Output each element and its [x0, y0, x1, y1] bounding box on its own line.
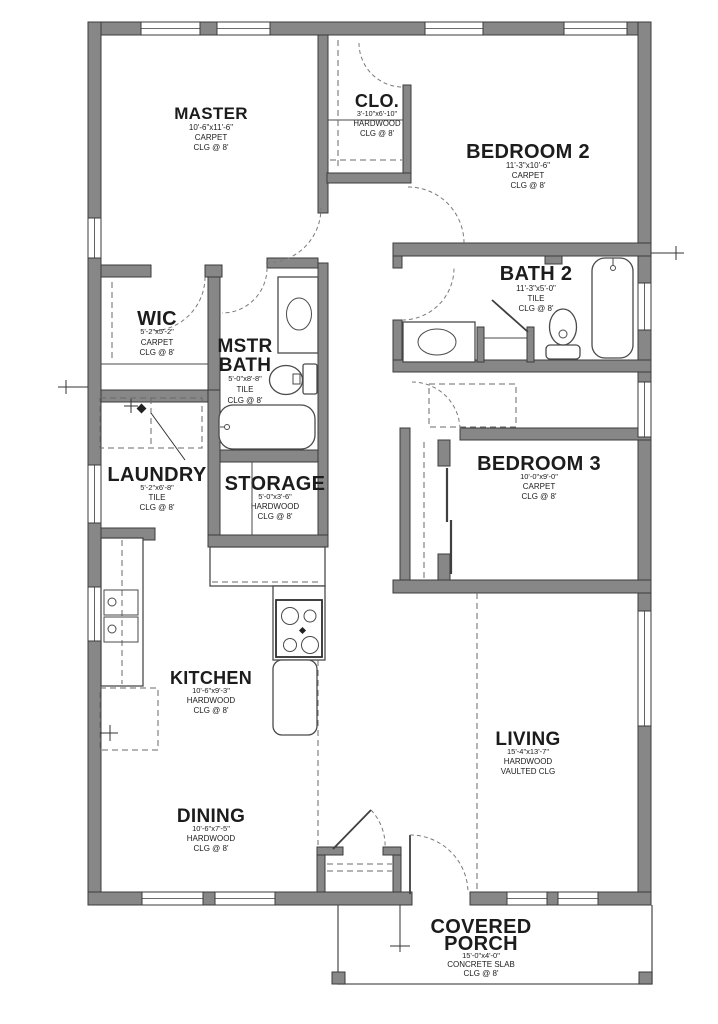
wall-segment: [400, 428, 410, 593]
mstr-bath-vanity: [278, 277, 318, 353]
storage-floor: HARDWOOD: [251, 502, 300, 511]
porch-floor: CONCRETE SLAB: [447, 960, 515, 969]
door-arc-front: [410, 835, 468, 893]
wall-segment: [318, 35, 328, 213]
wic-ceiling: CLG @ 8': [140, 348, 175, 357]
window: [217, 22, 270, 35]
window: [88, 465, 101, 523]
laundry-drain: [137, 404, 147, 414]
laundry-ceiling: CLG @ 8': [140, 503, 175, 512]
living-floor: HARDWOOD: [504, 757, 553, 766]
wall-segment: [393, 243, 651, 256]
coat-closet-door-leaf: [333, 810, 371, 849]
kitchen-label: KITCHEN: [170, 668, 252, 688]
window: [88, 218, 101, 258]
coat-closet-shelf: [327, 864, 392, 871]
bath2-floor: TILE: [528, 294, 545, 303]
bedroom3-floor: CARPET: [523, 482, 556, 491]
window: [425, 22, 483, 35]
bath2-tub: [592, 258, 633, 358]
door-arc-mstr-bath: [222, 268, 267, 313]
wall-segment: [403, 85, 411, 177]
window: [88, 587, 101, 641]
room-labels: MASTER 10'-6"x11'-6" CARPET CLG @ 8' CLO…: [107, 91, 600, 978]
window: [142, 892, 203, 905]
kitchen-counter: [101, 538, 143, 686]
living-ceiling: VAULTED CLG: [501, 767, 555, 776]
pantry-dashed: [100, 688, 158, 750]
porch-post: [332, 972, 345, 984]
wall-segment: [438, 554, 450, 580]
hall-closet-dashed: [429, 384, 516, 427]
bedroom2-ceiling: CLG @ 8': [511, 181, 546, 190]
wall-segment: [638, 22, 651, 905]
living-dims: 15'-4"x13'-7": [507, 747, 549, 756]
kitchen-floor: HARDWOOD: [187, 696, 236, 705]
laundry-dims: 5'-2"x6'-8": [140, 483, 174, 492]
bath2-dims: 11'-3"x5'-0": [516, 284, 556, 293]
door-arc-closet: [359, 43, 403, 87]
window: [141, 22, 200, 35]
wall-segment: [205, 265, 222, 277]
floor-plan-page: MASTER 10'-6"x11'-6" CARPET CLG @ 8' CLO…: [0, 0, 718, 1024]
door-arc-bath2: [402, 268, 454, 320]
window: [638, 382, 651, 437]
window: [507, 892, 547, 905]
wall-segment: [317, 847, 343, 855]
storage-ceiling: CLG @ 8': [258, 512, 293, 521]
wall-segment: [477, 327, 484, 362]
clo-ceiling: CLG @ 8': [360, 129, 395, 138]
bedroom2-dims: 11'-3"x10'-6": [506, 161, 550, 170]
wall-segment: [527, 327, 534, 362]
mstr-bath-tub: [219, 405, 315, 449]
mstr-bath-floor: TILE: [237, 385, 254, 394]
dining-dims: 10'-6"x7'-5": [192, 824, 230, 833]
kitchen-dims: 10'-6"x9'-3": [192, 686, 230, 695]
mstr-bath-dims: 5'-0"x8'-8": [228, 374, 262, 383]
clo-dims: 3'-10"x6'-10": [357, 109, 398, 118]
wic-dims: 5'-2"x5'-2": [140, 327, 174, 336]
door-arc-bedroom2: [408, 187, 464, 243]
wall-segment: [88, 22, 101, 905]
section-marker-left: [58, 380, 88, 394]
wall-segment: [318, 263, 328, 547]
bedroom3-dims: 10'-0"x9'-0": [520, 472, 558, 481]
bedroom3-ceiling: CLG @ 8': [522, 492, 557, 501]
dining-ceiling: CLG @ 8': [194, 844, 229, 853]
window: [638, 611, 651, 726]
window: [558, 892, 598, 905]
master-ceiling: CLG @ 8': [194, 143, 229, 152]
wall-segment: [267, 258, 318, 268]
bath2-label: BATH 2: [500, 263, 573, 285]
area-break-lines: [318, 593, 477, 891]
mstr-bath-toilet: [270, 364, 318, 395]
bedroom2-floor: CARPET: [512, 171, 545, 180]
wall-segment: [393, 580, 651, 593]
mstr-bath-ceiling: CLG @ 8': [228, 396, 263, 405]
bath2-vanity: [403, 322, 475, 362]
clo-label: CLO.: [355, 91, 399, 111]
wic-floor: CARPET: [141, 338, 174, 347]
kitchen-stove: [276, 600, 322, 657]
bedroom2-label: BEDROOM 2: [466, 141, 590, 163]
porch-dims: 15'-0"x4'-0": [462, 951, 500, 960]
wall-segment: [438, 440, 450, 466]
wall-segment: [460, 428, 651, 440]
refrigerator: [273, 660, 317, 735]
window: [564, 22, 627, 35]
master-floor: CARPET: [195, 133, 228, 142]
bath2-ceiling: CLG @ 8': [519, 304, 554, 313]
door-arc-coat-closet: [371, 810, 385, 849]
bath2-toilet: [546, 309, 580, 359]
laundry-floor: TILE: [149, 493, 166, 502]
wall-segment: [101, 265, 151, 277]
wall-segment: [393, 256, 402, 268]
washer-dryer-dashed: [100, 398, 202, 460]
wall-segment: [383, 847, 401, 855]
door-arc-bedroom3: [412, 382, 460, 430]
door-arc-master: [266, 208, 321, 263]
mstr-bath-label-1: MSTR: [217, 336, 272, 357]
storage-dims: 5'-0"x3'-6": [258, 492, 292, 501]
wall-segment: [208, 535, 328, 547]
porch-post: [639, 972, 652, 984]
kitchen-ceiling: CLG @ 8': [194, 706, 229, 715]
window: [215, 892, 275, 905]
dining-floor: HARDWOOD: [187, 834, 236, 843]
mstr-bath-label-2: BATH: [219, 355, 272, 376]
wall-segment: [327, 173, 411, 183]
master-dims: 10'-6"x11'-6": [189, 123, 233, 132]
clo-floor: HARDWOOD: [353, 119, 401, 128]
wall-segment: [208, 390, 220, 540]
master-label: MASTER: [174, 104, 248, 123]
section-marker-right: [651, 246, 684, 260]
floor-plan: MASTER 10'-6"x11'-6" CARPET CLG @ 8' CLO…: [0, 0, 718, 1024]
porch-ceiling: CLG @ 8': [464, 969, 499, 978]
wall-segment: [220, 450, 318, 462]
window: [638, 283, 651, 330]
section-marker-bottom: [390, 905, 410, 952]
